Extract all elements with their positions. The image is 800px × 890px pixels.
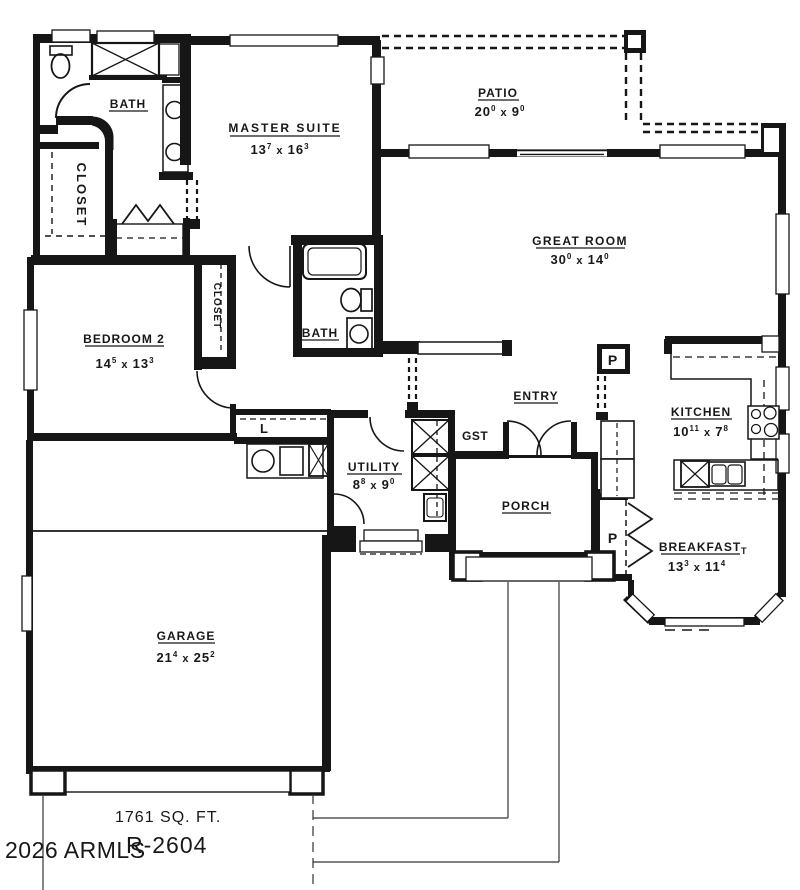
svg-text:88 x 90: 88 x 90 bbox=[353, 477, 396, 492]
svg-text:KITCHEN: KITCHEN bbox=[671, 405, 731, 419]
svg-text:PORCH: PORCH bbox=[502, 499, 550, 513]
svg-text:ENTRY: ENTRY bbox=[513, 389, 558, 403]
svg-text:CLOSET: CLOSET bbox=[74, 163, 89, 228]
svg-text:BATH: BATH bbox=[302, 326, 338, 340]
svg-text:MASTER SUITE: MASTER SUITE bbox=[228, 121, 341, 135]
svg-text:300 x 140: 300 x 140 bbox=[550, 252, 609, 267]
svg-text:BATH: BATH bbox=[110, 97, 146, 111]
svg-text:PATIO: PATIO bbox=[478, 86, 518, 100]
svg-text:UTILITY: UTILITY bbox=[348, 460, 400, 474]
svg-text:133 x 114: 133 x 114 bbox=[668, 559, 726, 574]
svg-text:1761 SQ. FT.: 1761 SQ. FT. bbox=[115, 809, 221, 826]
svg-text:L: L bbox=[260, 421, 269, 436]
svg-text:CLOSET: CLOSET bbox=[211, 283, 222, 330]
svg-text:137 x 163: 137 x 163 bbox=[250, 142, 309, 157]
svg-text:GST: GST bbox=[462, 429, 488, 443]
svg-text:200 x 90: 200 x 90 bbox=[475, 104, 526, 119]
svg-text:2026 ARMLS: 2026 ARMLS bbox=[5, 837, 146, 863]
svg-text:BREAKFAST: BREAKFAST bbox=[659, 540, 741, 554]
svg-text:GREAT ROOM: GREAT ROOM bbox=[532, 234, 628, 248]
svg-text:T: T bbox=[741, 546, 748, 556]
svg-text:BEDROOM 2: BEDROOM 2 bbox=[83, 332, 165, 346]
svg-text:P: P bbox=[608, 352, 618, 368]
svg-text:145 x 133: 145 x 133 bbox=[95, 356, 154, 371]
svg-text:214 x 252: 214 x 252 bbox=[156, 650, 215, 665]
svg-text:GARAGE: GARAGE bbox=[157, 629, 216, 643]
svg-text:1011 x 78: 1011 x 78 bbox=[673, 424, 729, 439]
svg-text:P: P bbox=[608, 530, 618, 546]
